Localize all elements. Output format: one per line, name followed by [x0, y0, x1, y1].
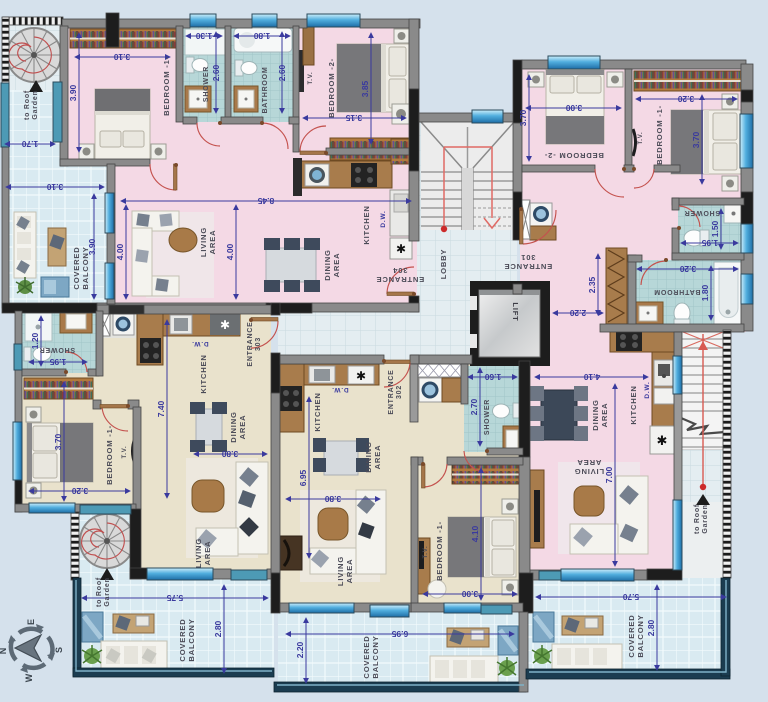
svg-text:2.60: 2.60	[277, 64, 287, 81]
svg-text:2.20: 2.20	[295, 641, 305, 658]
svg-text:D.W.: D.W.	[644, 381, 651, 398]
svg-text:LIVINGAREA: LIVINGAREA	[336, 556, 354, 586]
svg-text:T.V.: T.V.	[308, 72, 314, 85]
svg-text:to RoofGarden: to RoofGarden	[96, 577, 111, 607]
svg-text:BEDROOM -2-: BEDROOM -2-	[544, 151, 604, 160]
svg-text:SHOWER: SHOWER	[203, 66, 210, 102]
svg-text:3.80: 3.80	[221, 449, 238, 459]
svg-text:2.80: 2.80	[646, 619, 656, 636]
svg-text:5.70: 5.70	[622, 592, 639, 602]
svg-text:3.20: 3.20	[679, 264, 696, 274]
svg-text:KITCHEN: KITCHEN	[629, 385, 638, 424]
svg-text:1.20: 1.20	[30, 332, 40, 349]
svg-text:T.V.: T.V.	[638, 132, 644, 145]
svg-text:3.15: 3.15	[345, 113, 362, 123]
svg-text:7.40: 7.40	[156, 400, 166, 417]
svg-text:3.20: 3.20	[71, 486, 88, 496]
svg-text:2.20: 2.20	[569, 308, 586, 318]
svg-text:3.10: 3.10	[46, 182, 63, 192]
svg-text:LOBBY: LOBBY	[439, 249, 448, 280]
svg-text:✱: ✱	[396, 242, 406, 256]
svg-text:1.95: 1.95	[701, 238, 718, 248]
svg-text:LIFT: LIFT	[511, 302, 520, 321]
svg-text:LIVINGAREA: LIVINGAREA	[194, 538, 212, 568]
svg-text:2.35: 2.35	[587, 276, 597, 293]
svg-text:3.70: 3.70	[53, 433, 63, 450]
svg-text:4.10: 4.10	[583, 372, 600, 382]
svg-text:T.V.: T.V.	[423, 546, 429, 559]
svg-text:✱: ✱	[220, 318, 230, 332]
svg-text:DININGAREA: DININGAREA	[591, 399, 609, 430]
svg-text:KITCHEN: KITCHEN	[362, 205, 371, 244]
svg-text:SHOWER: SHOWER	[684, 209, 720, 216]
svg-text:8.45: 8.45	[257, 196, 274, 206]
svg-text:W: W	[24, 673, 34, 682]
svg-text:6.95: 6.95	[298, 469, 308, 486]
svg-text:BEDROOM -1-: BEDROOM -1-	[105, 425, 114, 485]
svg-text:DININGAREA: DININGAREA	[364, 441, 382, 472]
svg-text:BATHROOM: BATHROOM	[262, 66, 269, 113]
svg-text:3.80: 3.80	[324, 494, 341, 504]
svg-text:D.W.: D.W.	[191, 340, 208, 347]
svg-text:KITCHEN: KITCHEN	[199, 354, 208, 393]
svg-text:BEDROOM -1-: BEDROOM -1-	[435, 521, 444, 581]
svg-text:3.70: 3.70	[691, 131, 701, 148]
svg-text:COVEREDBALCONY: COVEREDBALCONY	[362, 635, 380, 678]
svg-text:1.80: 1.80	[253, 31, 270, 41]
svg-text:BATHROOM: BATHROOM	[653, 288, 700, 295]
svg-text:3.70: 3.70	[518, 109, 528, 126]
svg-text:7.00: 7.00	[604, 466, 614, 483]
svg-text:✱: ✱	[356, 369, 366, 383]
svg-text:KITCHEN: KITCHEN	[313, 392, 322, 431]
svg-text:SHOWER: SHOWER	[484, 399, 491, 435]
svg-text:1.70: 1.70	[21, 139, 38, 149]
svg-text:COVEREDBALCONY: COVEREDBALCONY	[627, 614, 645, 657]
svg-text:to RoofGarden: to RoofGarden	[694, 504, 709, 534]
svg-text:LIVINGAREA: LIVINGAREA	[574, 458, 604, 476]
svg-text:BEDROOM -2-: BEDROOM -2-	[327, 58, 336, 118]
svg-text:3.10: 3.10	[113, 52, 130, 62]
svg-text:DININGAREA: DININGAREA	[229, 411, 247, 442]
svg-text:3.00: 3.00	[461, 589, 478, 599]
svg-text:6.95: 6.95	[391, 629, 408, 639]
svg-text:1.50: 1.50	[710, 220, 720, 237]
svg-text:SHOWER: SHOWER	[39, 346, 75, 353]
svg-text:3.85: 3.85	[360, 80, 370, 97]
svg-text:3.00: 3.00	[565, 103, 582, 113]
svg-text:1.30: 1.30	[195, 31, 212, 41]
svg-text:2.80: 2.80	[213, 620, 223, 637]
svg-text:2.60: 2.60	[211, 64, 221, 81]
svg-text:4.00: 4.00	[115, 243, 125, 260]
svg-text:✱: ✱	[657, 433, 668, 448]
svg-text:3.90: 3.90	[68, 84, 78, 101]
svg-text:D.W.: D.W.	[331, 386, 348, 393]
svg-text:D.W.: D.W.	[380, 210, 387, 227]
svg-text:BEDROOM -1-: BEDROOM -1-	[162, 56, 171, 116]
svg-text:3.20: 3.20	[677, 94, 694, 104]
svg-text:DININGAREA: DININGAREA	[323, 249, 341, 280]
svg-text:COVEREDBALCONY: COVEREDBALCONY	[72, 246, 90, 289]
svg-text:T.V.: T.V.	[122, 446, 128, 459]
svg-text:S: S	[54, 647, 64, 653]
svg-text:to RoofGarden: to RoofGarden	[24, 90, 39, 120]
svg-text:E: E	[26, 619, 36, 625]
svg-text:COVEREDBALCONY: COVEREDBALCONY	[178, 618, 196, 661]
svg-text:N: N	[0, 648, 8, 655]
svg-text:4.10: 4.10	[470, 525, 480, 542]
svg-text:4.00: 4.00	[225, 243, 235, 260]
svg-text:5.75: 5.75	[166, 593, 183, 603]
svg-text:1.60: 1.60	[484, 372, 501, 382]
svg-text:2.70: 2.70	[469, 398, 479, 415]
svg-text:BEDROOM -1-: BEDROOM -1-	[655, 105, 664, 165]
svg-text:1.95: 1.95	[49, 357, 66, 367]
svg-text:LIVINGAREA: LIVINGAREA	[199, 227, 217, 257]
